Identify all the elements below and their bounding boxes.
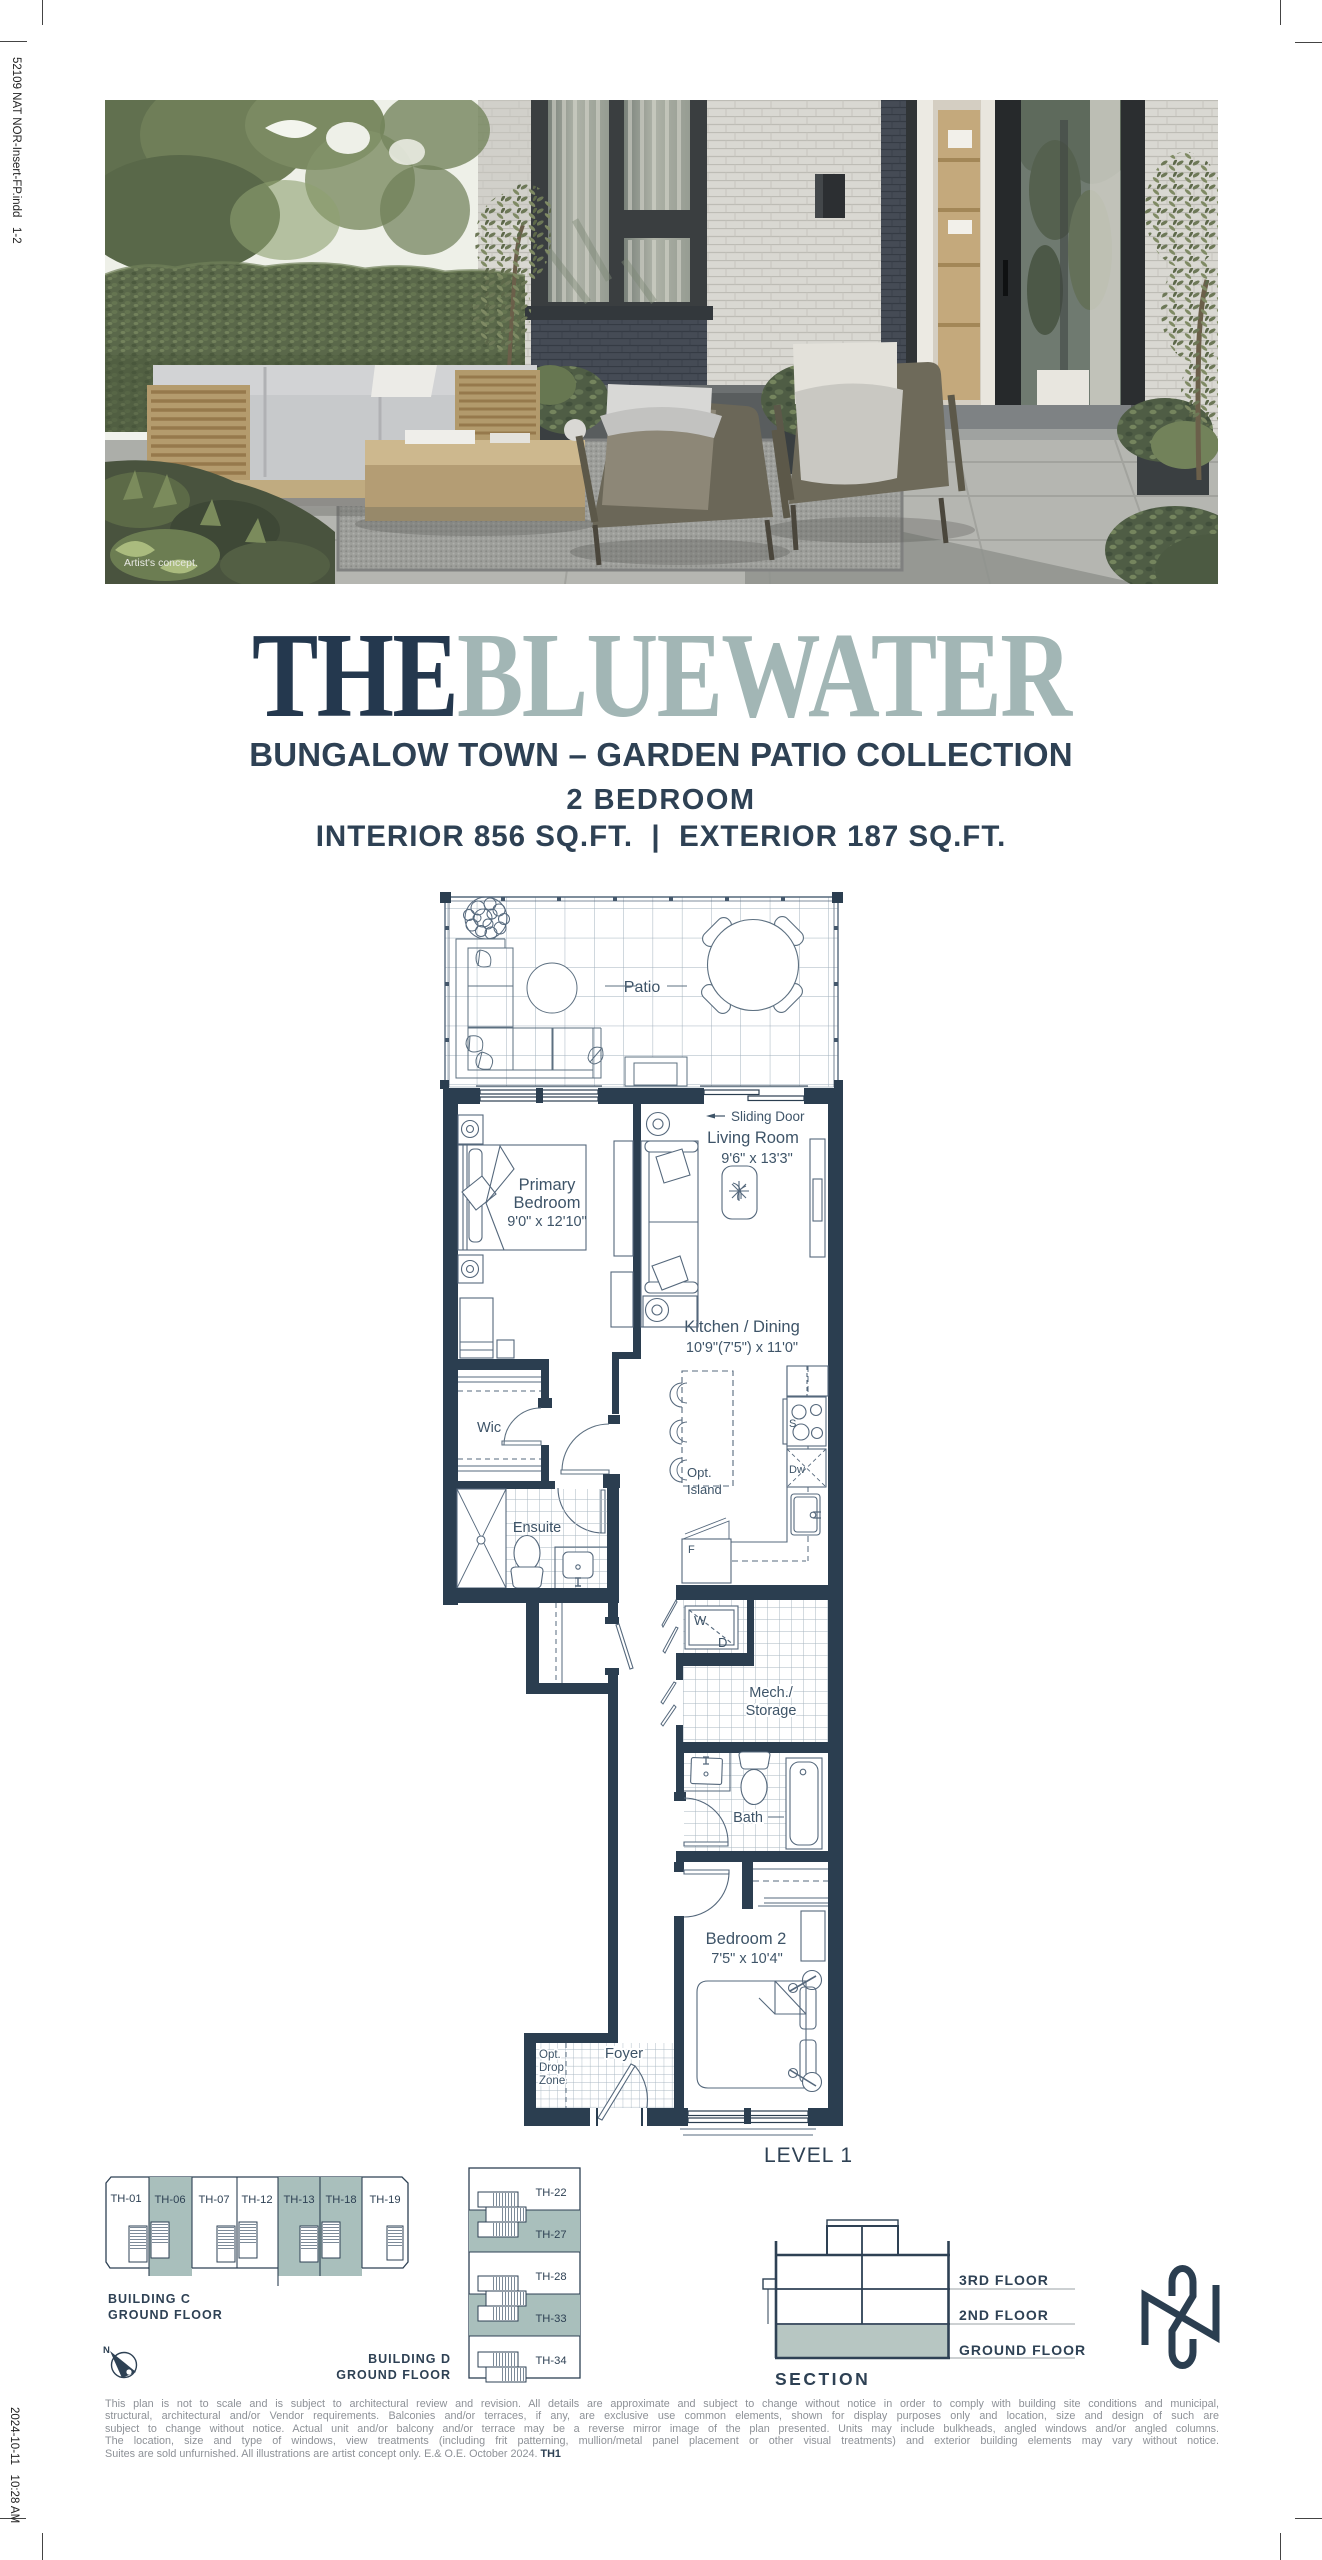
svg-text:Storage: Storage bbox=[746, 1703, 797, 1719]
svg-text:TH-19: TH-19 bbox=[369, 2194, 400, 2206]
svg-text:F: F bbox=[688, 1544, 695, 1556]
svg-text:Bedroom: Bedroom bbox=[514, 1194, 581, 1212]
svg-text:Opt.: Opt. bbox=[539, 2049, 561, 2061]
svg-text:Zone: Zone bbox=[539, 2075, 565, 2087]
svg-text:TH-28: TH-28 bbox=[535, 2271, 566, 2283]
svg-text:TH-12: TH-12 bbox=[241, 2194, 272, 2206]
svg-text:TH-18: TH-18 bbox=[325, 2194, 356, 2206]
svg-text:GROUND FLOOR: GROUND FLOOR bbox=[336, 2368, 451, 2382]
svg-text:Patio: Patio bbox=[624, 979, 661, 996]
svg-text:Primary: Primary bbox=[519, 1176, 577, 1194]
svg-text:TH-06: TH-06 bbox=[154, 2194, 185, 2206]
svg-text:TH-22: TH-22 bbox=[535, 2187, 566, 2199]
svg-text:Drop: Drop bbox=[539, 2062, 564, 2074]
svg-text:SECTION: SECTION bbox=[775, 2369, 870, 2389]
svg-text:GROUND FLOOR: GROUND FLOOR bbox=[959, 2342, 1086, 2358]
svg-text:TH-33: TH-33 bbox=[535, 2313, 566, 2325]
svg-text:Bedroom 2: Bedroom 2 bbox=[706, 1930, 787, 1948]
svg-text:2ND FLOOR: 2ND FLOOR bbox=[959, 2307, 1049, 2323]
svg-text:10'9"(7'5") x 11'0": 10'9"(7'5") x 11'0" bbox=[686, 1340, 798, 1356]
svg-text:Sliding Door: Sliding Door bbox=[731, 1109, 805, 1124]
svg-text:Mech./: Mech./ bbox=[749, 1685, 793, 1701]
svg-text:Ensuite: Ensuite bbox=[513, 1520, 561, 1536]
svg-text:3RD FLOOR: 3RD FLOOR bbox=[959, 2272, 1049, 2288]
svg-text:BUILDING C: BUILDING C bbox=[108, 2292, 191, 2306]
svg-text:TH-34: TH-34 bbox=[535, 2355, 566, 2367]
svg-text:Wic: Wic bbox=[477, 1420, 501, 1436]
svg-text:GROUND FLOOR: GROUND FLOOR bbox=[108, 2308, 223, 2322]
svg-text:TH-27: TH-27 bbox=[535, 2229, 566, 2241]
svg-text:Kitchen / Dining: Kitchen / Dining bbox=[684, 1318, 800, 1336]
svg-text:TH-01: TH-01 bbox=[110, 2193, 141, 2205]
svg-text:9'6" x 13'3": 9'6" x 13'3" bbox=[721, 1151, 792, 1167]
svg-text:W: W bbox=[694, 1613, 707, 1628]
svg-text:Living Room: Living Room bbox=[707, 1129, 799, 1147]
svg-text:TH-07: TH-07 bbox=[198, 2194, 229, 2206]
svg-text:S: S bbox=[789, 1418, 796, 1430]
svg-text:7'5" x 10'4": 7'5" x 10'4" bbox=[711, 1951, 782, 1967]
svg-text:Dw: Dw bbox=[789, 1464, 805, 1476]
svg-text:Opt.: Opt. bbox=[687, 1465, 712, 1480]
svg-text:N: N bbox=[103, 2345, 110, 2356]
svg-text:Bath: Bath bbox=[733, 1810, 763, 1826]
svg-text:D: D bbox=[718, 1635, 727, 1650]
svg-text:BUILDING D: BUILDING D bbox=[368, 2352, 451, 2366]
svg-text:Island: Island bbox=[687, 1482, 722, 1497]
svg-text:Foyer: Foyer bbox=[605, 2045, 643, 2062]
svg-text:TH-13: TH-13 bbox=[283, 2194, 314, 2206]
svg-text:9'0" x 12'10": 9'0" x 12'10" bbox=[507, 1214, 587, 1230]
